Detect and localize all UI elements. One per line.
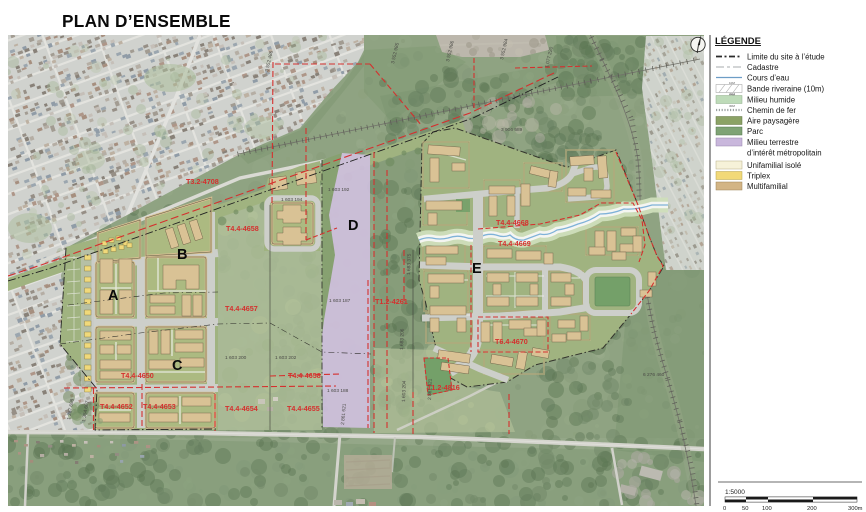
- svg-text:Milieu humide: Milieu humide: [747, 96, 795, 105]
- svg-text:50: 50: [742, 506, 748, 512]
- svg-text:Multifamilial: Multifamilial: [747, 182, 788, 191]
- svg-text:1 603 202: 1 603 202: [275, 355, 297, 361]
- svg-text:300m: 300m: [848, 506, 863, 512]
- svg-text:T4.4-4654: T4.4-4654: [225, 404, 258, 413]
- svg-text:1 603 187: 1 603 187: [329, 298, 351, 304]
- svg-text:T3.2-4708: T3.2-4708: [186, 177, 219, 186]
- svg-text:1 603 194: 1 603 194: [281, 197, 303, 203]
- svg-text:PLAN D’ENSEMBLE: PLAN D’ENSEMBLE: [62, 11, 231, 31]
- svg-text:LÉGENDE: LÉGENDE: [715, 36, 761, 47]
- svg-text:200: 200: [807, 506, 817, 512]
- svg-text:1 603 200: 1 603 200: [225, 355, 247, 361]
- svg-text:T4.4-4653: T4.4-4653: [143, 402, 176, 411]
- svg-text:d’intérêt métropolitain: d’intérêt métropolitain: [747, 149, 822, 158]
- svg-text:T4.4-4658: T4.4-4658: [226, 224, 259, 233]
- svg-text:Limite du site à l’étude: Limite du site à l’étude: [747, 53, 825, 62]
- svg-text:30M: 30M: [729, 104, 735, 108]
- svg-text:T4.4-4657: T4.4-4657: [225, 304, 258, 313]
- svg-text:T4.4-4668: T4.4-4668: [496, 218, 529, 227]
- svg-text:T4.4-4669: T4.4-4669: [498, 239, 531, 248]
- svg-text:Unifamilial isolé: Unifamilial isolé: [747, 161, 801, 170]
- svg-text:T4.4-4658: T4.4-4658: [288, 371, 321, 380]
- svg-text:A: A: [108, 288, 119, 304]
- svg-text:Chemin de fer: Chemin de fer: [747, 106, 796, 115]
- svg-text:100: 100: [762, 506, 772, 512]
- svg-text:1 603 188: 1 603 188: [327, 388, 349, 394]
- svg-text:T1.2-4261: T1.2-4261: [375, 297, 408, 306]
- svg-text:C: C: [172, 358, 183, 374]
- svg-text:Milieu terrestre: Milieu terrestre: [747, 138, 799, 147]
- svg-text:Parc: Parc: [747, 127, 763, 136]
- svg-text:1 683 375: 1 683 375: [406, 253, 413, 275]
- svg-text:B: B: [177, 247, 187, 263]
- svg-text:T6.4-4670: T6.4-4670: [495, 337, 528, 346]
- svg-text:1 683 206: 1 683 206: [399, 328, 406, 350]
- svg-text:T4.4-4655: T4.4-4655: [287, 404, 320, 413]
- svg-text:1 603 192: 1 603 192: [328, 187, 350, 193]
- svg-text:3 906 589: 3 906 589: [501, 127, 523, 133]
- svg-text:Cadastre: Cadastre: [747, 63, 779, 72]
- svg-text:T4.4-4652: T4.4-4652: [100, 402, 133, 411]
- svg-text:Cours d’eau: Cours d’eau: [747, 74, 789, 83]
- svg-text:D: D: [348, 218, 358, 234]
- svg-text:1:5000: 1:5000: [725, 489, 745, 496]
- svg-text:T4.4-4650: T4.4-4650: [121, 371, 154, 380]
- svg-text:10M: 10M: [729, 81, 735, 85]
- svg-text:E: E: [472, 261, 482, 277]
- svg-text:Bande riveraine (10m): Bande riveraine (10m): [747, 85, 825, 94]
- svg-text:30M: 30M: [729, 92, 735, 96]
- svg-text:1 603 204: 1 603 204: [401, 380, 408, 402]
- svg-text:2 861 321: 2 861 321: [427, 378, 434, 400]
- svg-text:Aire paysagère: Aire paysagère: [747, 117, 799, 126]
- svg-text:Triplex: Triplex: [747, 172, 770, 181]
- svg-text:0: 0: [723, 506, 726, 512]
- svg-text:6 276 460: 6 276 460: [643, 372, 665, 378]
